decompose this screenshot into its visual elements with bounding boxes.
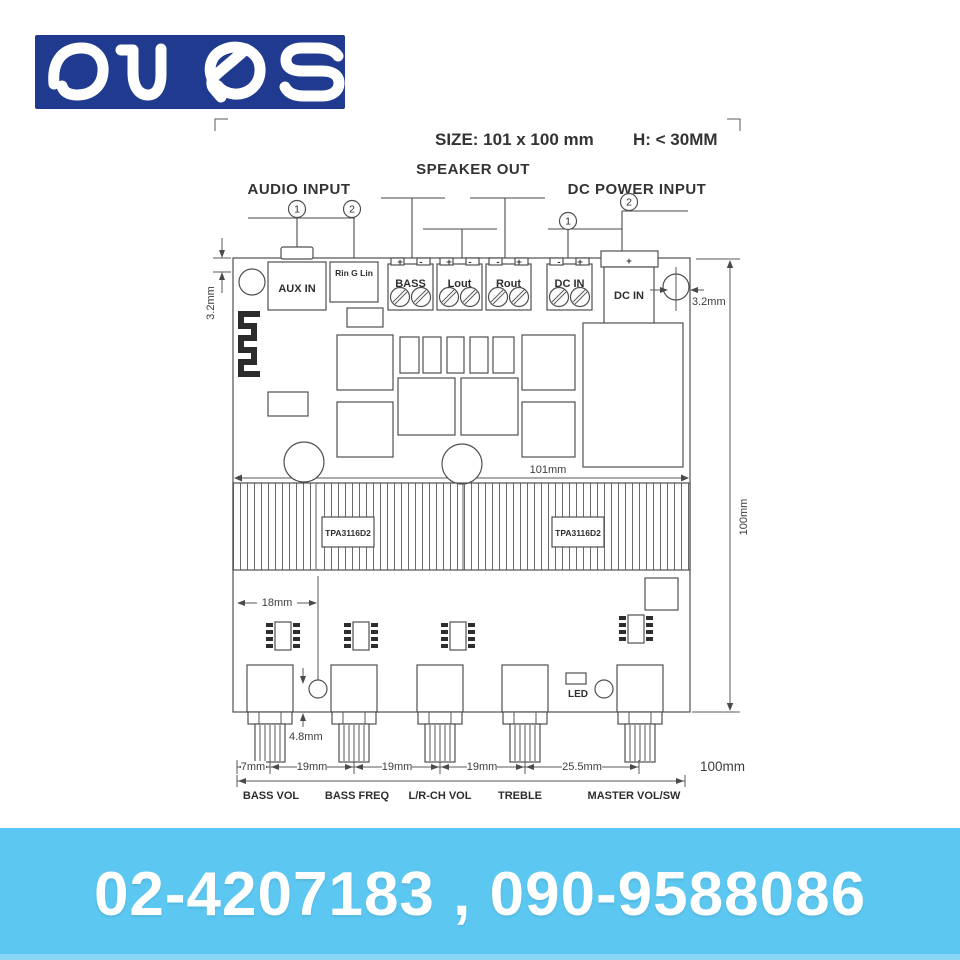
- svg-text:19mm: 19mm: [382, 761, 413, 773]
- svg-text:1: 1: [565, 216, 571, 228]
- svg-text:Lout: Lout: [448, 278, 472, 290]
- svg-text:-: -: [468, 257, 471, 268]
- svg-text:AUX IN: AUX IN: [278, 283, 315, 295]
- speaker-out-label: SPEAKER OUT: [416, 161, 530, 178]
- mounting-hole-bottom-left: [309, 680, 327, 698]
- capacitor-left: [284, 442, 324, 482]
- svg-text:TPA3116D2: TPA3116D2: [555, 528, 601, 538]
- svg-text:BASS: BASS: [395, 278, 426, 290]
- brand-logo: [35, 35, 345, 109]
- label-treble: TREBLE: [498, 790, 542, 802]
- component-rect: [268, 392, 308, 416]
- dc-marker-1: 1: [560, 213, 577, 230]
- aux-jack-barrel: [281, 247, 313, 259]
- size-title: SIZE: 101 x 100 mm: [435, 130, 594, 149]
- dc-in-terminal: - + DC IN: [547, 257, 592, 310]
- label-lr-ch-vol: L/R-CH VOL: [409, 790, 472, 802]
- svg-text:Rin G Lin: Rin G Lin: [335, 268, 373, 278]
- pot-lr-ch-vol: [417, 665, 463, 762]
- svg-text:+: +: [397, 257, 403, 268]
- label-bass-freq: BASS FREQ: [325, 790, 390, 802]
- svg-text:2: 2: [626, 197, 632, 209]
- mounting-hole-left: [239, 269, 265, 295]
- lout-terminal: + - Lout: [437, 257, 482, 310]
- dc-power-input-label: DC POWER INPUT: [568, 181, 707, 198]
- height-title: H: < 30MM: [633, 130, 718, 149]
- dim-bottom-total: [237, 775, 685, 787]
- svg-text:DC IN: DC IN: [555, 278, 585, 290]
- svg-text:25.5mm: 25.5mm: [562, 761, 602, 773]
- svg-text:-: -: [419, 257, 422, 268]
- svg-text:+: +: [626, 256, 632, 267]
- rout-terminal: - + Rout: [486, 257, 531, 310]
- component-square: [645, 578, 678, 610]
- svg-text:4.8mm: 4.8mm: [289, 731, 323, 743]
- svg-text:+: +: [446, 257, 452, 268]
- amp-chip-label-left: TPA3116D2: [322, 517, 374, 547]
- label-master-vol: MASTER VOL/SW: [588, 790, 682, 802]
- mounting-hole-bottom-right: [595, 680, 613, 698]
- contact-banner: 02-4207183 , 090-9588086: [0, 828, 960, 960]
- svg-text:TPA3116D2: TPA3116D2: [325, 528, 371, 538]
- phone-numbers: 02-4207183 , 090-9588086: [94, 859, 866, 930]
- svg-text:-: -: [496, 257, 499, 268]
- brand-logo-glyphs: [35, 35, 345, 109]
- svg-text:101mm: 101mm: [530, 464, 567, 476]
- aux-in-jack: AUX IN: [268, 262, 326, 310]
- audio-marker-2: 2: [344, 201, 361, 218]
- pot-bass-freq: [331, 665, 377, 762]
- svg-text:19mm: 19mm: [467, 761, 498, 773]
- svg-text:3.2mm: 3.2mm: [692, 296, 726, 308]
- pot-treble: [502, 665, 548, 762]
- svg-text:3.2mm: 3.2mm: [205, 286, 217, 320]
- svg-text:2: 2: [349, 204, 355, 216]
- bass-terminal: + - BASS: [388, 257, 433, 310]
- page: SIZE: 101 x 100 mm H: < 30MM SPEAKER OUT…: [0, 0, 960, 960]
- logo-glyph-1: [54, 48, 103, 95]
- svg-text:18mm: 18mm: [262, 597, 293, 609]
- svg-text:-: -: [557, 257, 560, 268]
- audio-input-label: AUDIO INPUT: [248, 181, 351, 198]
- heatsink: TPA3116D2 TPA3116D2: [233, 483, 690, 570]
- crop-mark-left: [215, 119, 228, 131]
- svg-text:19mm: 19mm: [297, 761, 328, 773]
- dim-offset-left: 3.2mm: [205, 238, 231, 320]
- line-in-header: Rin G Lin: [330, 262, 378, 302]
- dim-board-height: 100mm: [692, 259, 750, 712]
- svg-text:Rout: Rout: [496, 278, 521, 290]
- logo-glyph-4: [285, 48, 339, 96]
- audio-marker-1: 1: [289, 201, 306, 218]
- svg-text:DC IN: DC IN: [614, 290, 644, 302]
- amp-chip-label-right: TPA3116D2: [552, 517, 604, 547]
- board-diagram: SIZE: 101 x 100 mm H: < 30MM SPEAKER OUT…: [0, 115, 960, 830]
- svg-text:+: +: [577, 257, 583, 268]
- label-bass-vol: BASS VOL: [243, 790, 300, 802]
- dim-pot-spacing-chain: 7mm 19mm 19mm 19mm 25.5mm 100mm: [237, 759, 745, 774]
- dim-bottom-width: 100mm: [700, 759, 745, 774]
- pot-master-vol: [617, 665, 663, 762]
- speaker-out-leaders: [381, 198, 545, 258]
- pot-bass-vol: [247, 665, 293, 762]
- crop-mark-right: [727, 119, 740, 131]
- svg-text:1: 1: [294, 204, 300, 216]
- svg-text:+: +: [516, 257, 522, 268]
- logo-glyph-2: [121, 49, 161, 95]
- svg-text:100mm: 100mm: [738, 499, 750, 536]
- svg-text:LED: LED: [568, 689, 588, 700]
- svg-text:7mm: 7mm: [241, 761, 265, 773]
- capacitor-center: [442, 444, 482, 484]
- dc-marker-2: 2: [621, 194, 638, 211]
